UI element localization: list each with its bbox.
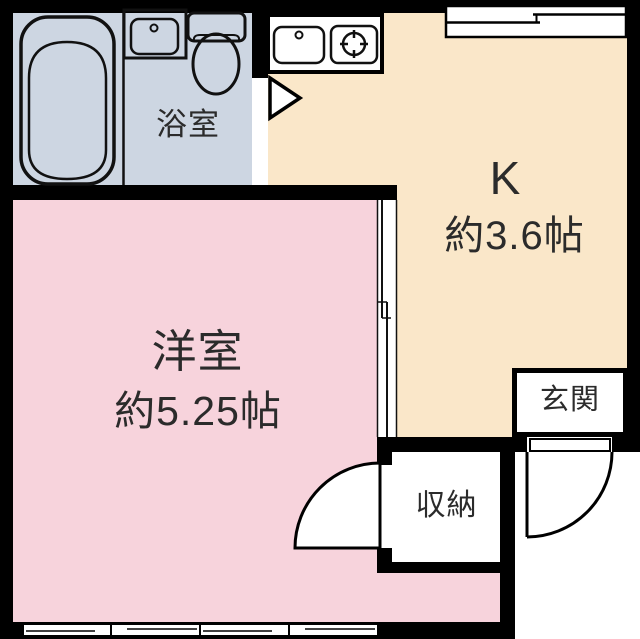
sliding-door-icon bbox=[378, 200, 397, 437]
sliding-window-top-icon bbox=[446, 6, 626, 37]
floor-plan: 浴室 K 約3.6帖 洋室 約5.25帖 玄関 収納 bbox=[0, 0, 640, 639]
kitchen-label: K bbox=[470, 154, 540, 202]
bath-door-triangle-icon bbox=[270, 78, 300, 118]
sliding-window-bottom-icon bbox=[23, 624, 378, 636]
bathroom-sink-icon bbox=[124, 10, 186, 58]
western-room-area-label: 約5.25帖 bbox=[93, 390, 303, 433]
entrance-door-swing-icon bbox=[527, 439, 612, 537]
closet-door-swing-icon bbox=[295, 463, 380, 548]
kitchen-area-label: 約3.6帖 bbox=[407, 215, 622, 257]
entrance-label: 玄関 bbox=[520, 385, 620, 415]
western-room-label: 洋室 bbox=[130, 328, 265, 375]
kitchen-counter bbox=[268, 15, 382, 72]
fixtures-layer bbox=[0, 0, 640, 639]
storage-label: 収納 bbox=[404, 490, 489, 522]
bathroom-label: 浴室 bbox=[150, 109, 226, 142]
toilet-icon bbox=[188, 13, 245, 94]
bathtub-icon bbox=[21, 17, 114, 184]
